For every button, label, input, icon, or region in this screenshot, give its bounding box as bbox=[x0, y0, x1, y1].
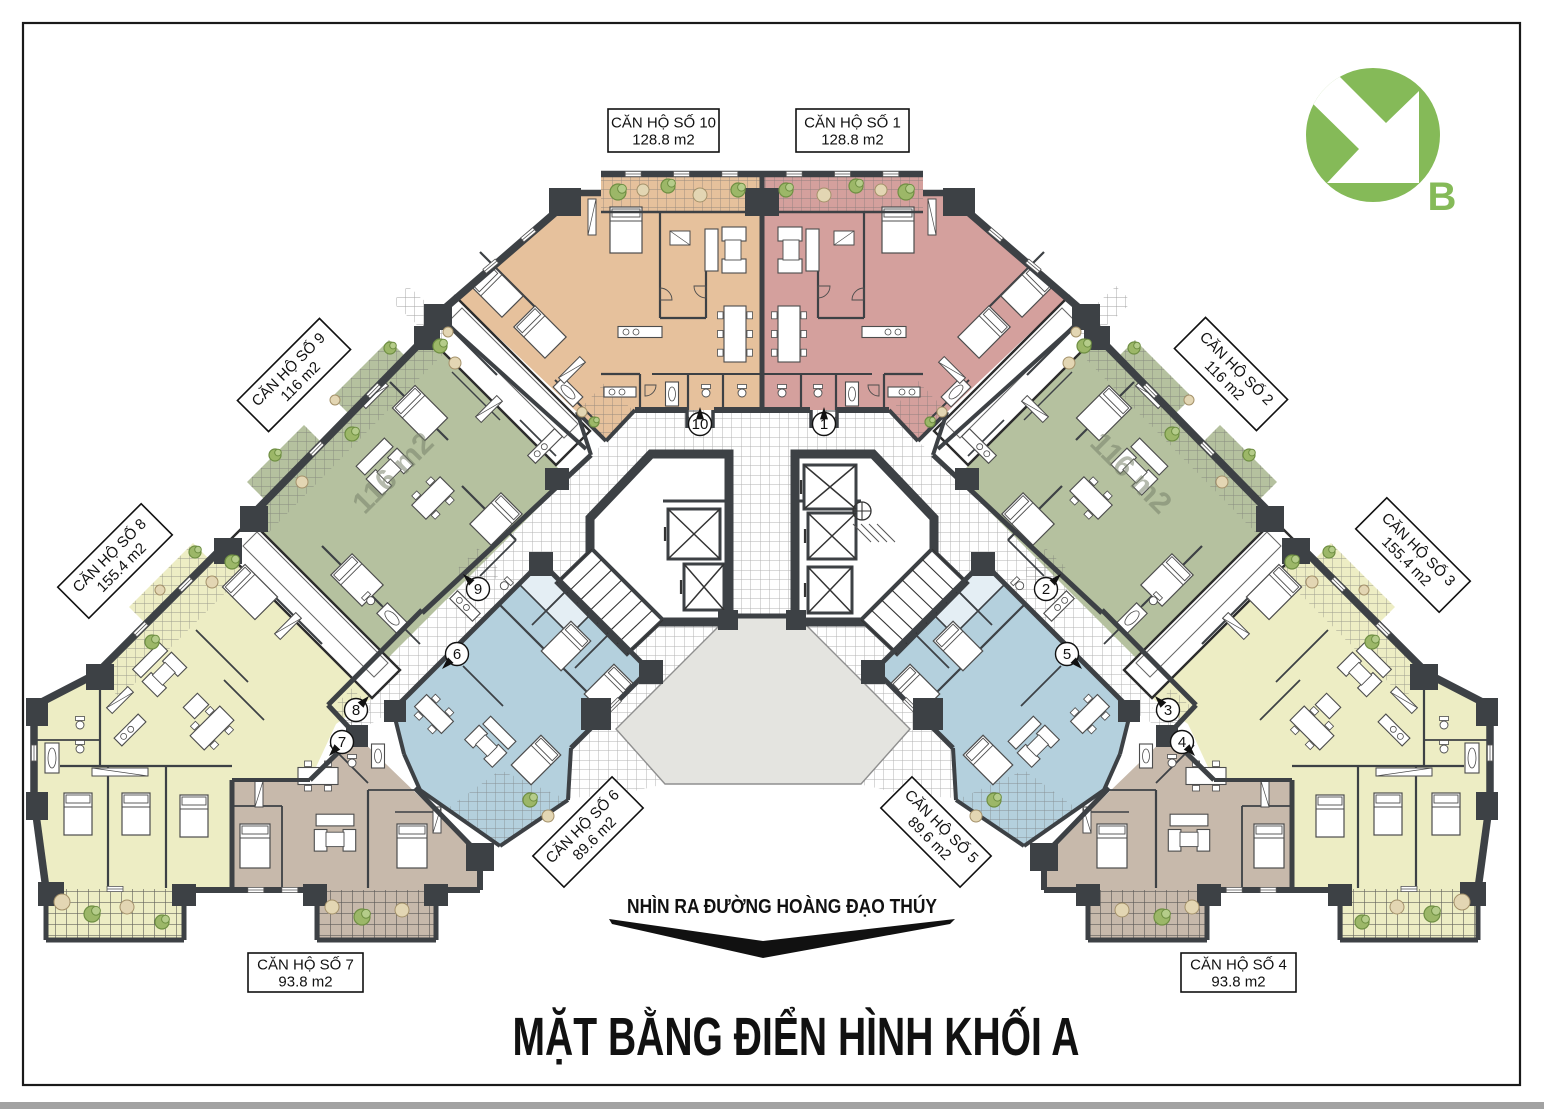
svg-text:2: 2 bbox=[1042, 581, 1050, 598]
svg-text:CĂN HỘ SỐ 4: CĂN HỘ SỐ 4 bbox=[1190, 956, 1287, 974]
svg-text:8: 8 bbox=[352, 702, 360, 719]
svg-text:4: 4 bbox=[1178, 734, 1186, 751]
svg-text:3: 3 bbox=[1164, 702, 1172, 719]
svg-text:CĂN HỘ SỐ 1: CĂN HỘ SỐ 1 bbox=[804, 114, 901, 132]
svg-text:CĂN HỘ SỐ 7: CĂN HỘ SỐ 7 bbox=[257, 956, 354, 974]
svg-text:NHÌN RA ĐƯỜNG HOÀNG ĐẠO THÚY: NHÌN RA ĐƯỜNG HOÀNG ĐẠO THÚY bbox=[627, 894, 938, 918]
svg-text:5: 5 bbox=[1063, 646, 1071, 663]
svg-text:93.8 m2: 93.8 m2 bbox=[1211, 974, 1265, 991]
svg-text:MẶT BẰNG ĐIỂN HÌNH KHỐI A: MẶT BẰNG ĐIỂN HÌNH KHỐI A bbox=[513, 1007, 1080, 1067]
svg-text:128.8 m2: 128.8 m2 bbox=[821, 132, 884, 149]
svg-text:128.8 m2: 128.8 m2 bbox=[632, 132, 695, 149]
svg-text:7: 7 bbox=[338, 734, 346, 751]
svg-text:B: B bbox=[1428, 175, 1457, 219]
svg-text:9: 9 bbox=[474, 581, 482, 598]
svg-text:CĂN HỘ SỐ 10: CĂN HỘ SỐ 10 bbox=[611, 114, 716, 132]
svg-text:93.8 m2: 93.8 m2 bbox=[278, 974, 332, 991]
svg-text:6: 6 bbox=[453, 646, 461, 663]
